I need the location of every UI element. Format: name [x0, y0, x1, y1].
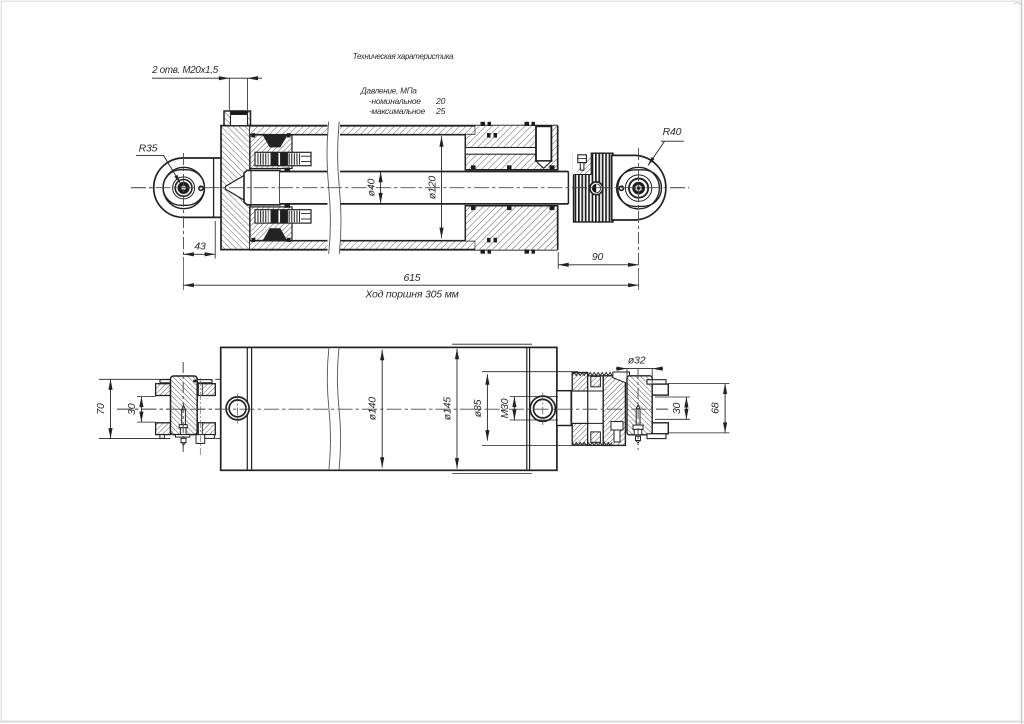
svg-text:М30: М30 — [499, 398, 511, 418]
svg-text:Техническая харатеристика: Техническая харатеристика — [353, 52, 454, 61]
svg-text:ø85: ø85 — [472, 399, 484, 417]
svg-text:2 отв. М20х1,5: 2 отв. М20х1,5 — [151, 65, 219, 76]
svg-text:Ход поршня 305 мм: Ход поршня 305 мм — [364, 289, 458, 301]
svg-text:25: 25 — [435, 106, 446, 116]
svg-text:615: 615 — [404, 272, 421, 284]
svg-text:70: 70 — [95, 403, 107, 415]
svg-text:R40: R40 — [663, 126, 682, 138]
svg-text:ø145: ø145 — [441, 397, 453, 420]
svg-text:Давление, МПа: Давление, МПа — [360, 87, 417, 96]
svg-text:90: 90 — [592, 251, 604, 263]
svg-text:20: 20 — [435, 96, 446, 106]
svg-text:ø140: ø140 — [367, 397, 379, 420]
svg-text:ø32: ø32 — [628, 354, 646, 366]
svg-text:-максимальное: -максимальное — [369, 106, 426, 116]
svg-text:43: 43 — [194, 241, 206, 253]
svg-text:R35: R35 — [139, 143, 158, 155]
svg-text:30: 30 — [671, 403, 683, 415]
svg-text:68: 68 — [710, 402, 722, 414]
svg-text:-номинальное: -номинальное — [369, 96, 421, 106]
